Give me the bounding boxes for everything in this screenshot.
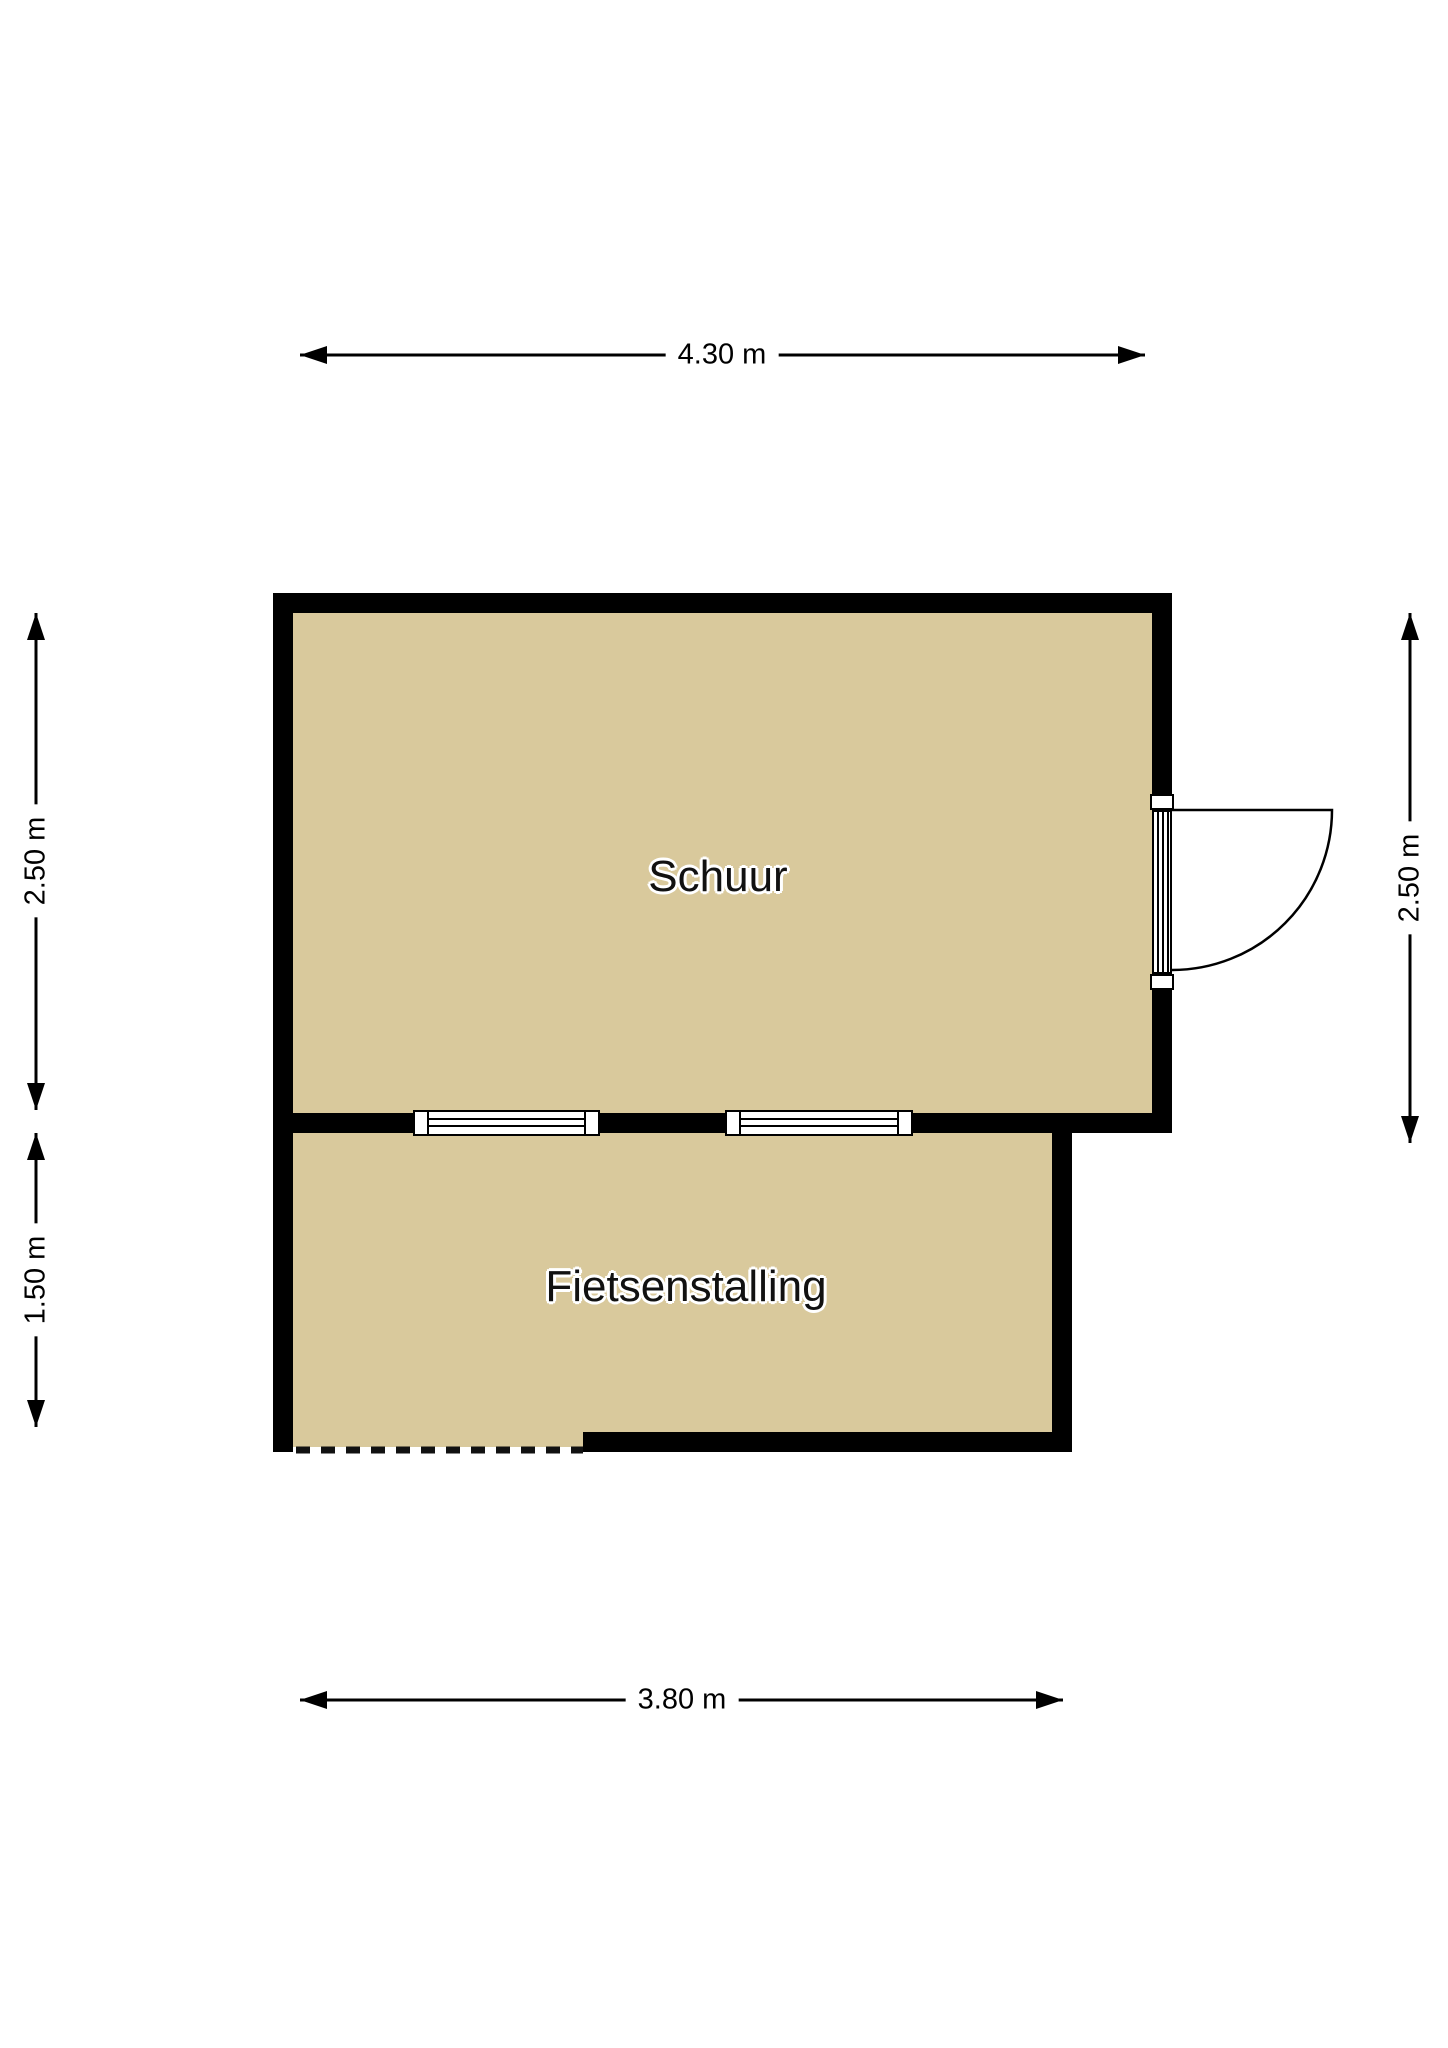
wall-middle-partition <box>273 1113 1172 1133</box>
window-left-icon <box>413 1110 600 1136</box>
wall-right-above-door <box>1152 613 1172 795</box>
window-right-icon <box>725 1110 913 1136</box>
window-pane <box>429 1112 584 1134</box>
dimension-label-right: 2.50 m <box>1394 822 1427 935</box>
glass-line <box>741 1125 897 1127</box>
window-cap <box>897 1112 911 1134</box>
glass-line <box>429 1125 584 1127</box>
door-leaf-line <box>1157 812 1159 972</box>
window-cap <box>727 1112 741 1134</box>
dimension-label-top: 4.30 m <box>666 339 779 372</box>
door-leaf-icon <box>1152 810 1172 974</box>
dimension-label-bottom: 3.80 m <box>626 1684 739 1717</box>
wall-left <box>273 593 293 1452</box>
door-swing-arc <box>1172 810 1332 970</box>
window-pane <box>741 1112 897 1134</box>
dimension-label-left-lower: 1.50 m <box>20 1224 53 1337</box>
door-jamb-top <box>1150 794 1174 810</box>
floor-plan: 4.30 m 3.80 m 2.50 m 1.50 m 2.50 m Schuu… <box>0 0 1448 2048</box>
window-cap <box>415 1112 429 1134</box>
wall-top <box>273 593 1172 613</box>
wall-bottom <box>583 1432 1072 1452</box>
wall-right-below-door <box>1152 990 1172 1133</box>
room-label-fietsenstalling: Fietsenstalling <box>545 1262 826 1312</box>
window-cap <box>584 1112 598 1134</box>
glass-line <box>741 1118 897 1120</box>
wall-fietsenstalling-right <box>1052 1133 1072 1452</box>
door-jamb-bottom <box>1150 974 1174 990</box>
door-leaf-line <box>1162 812 1164 972</box>
glass-line <box>429 1118 584 1120</box>
door-leaf-line <box>1167 812 1169 972</box>
dimension-label-left-upper: 2.50 m <box>20 805 53 918</box>
room-label-schuur: Schuur <box>648 852 787 902</box>
